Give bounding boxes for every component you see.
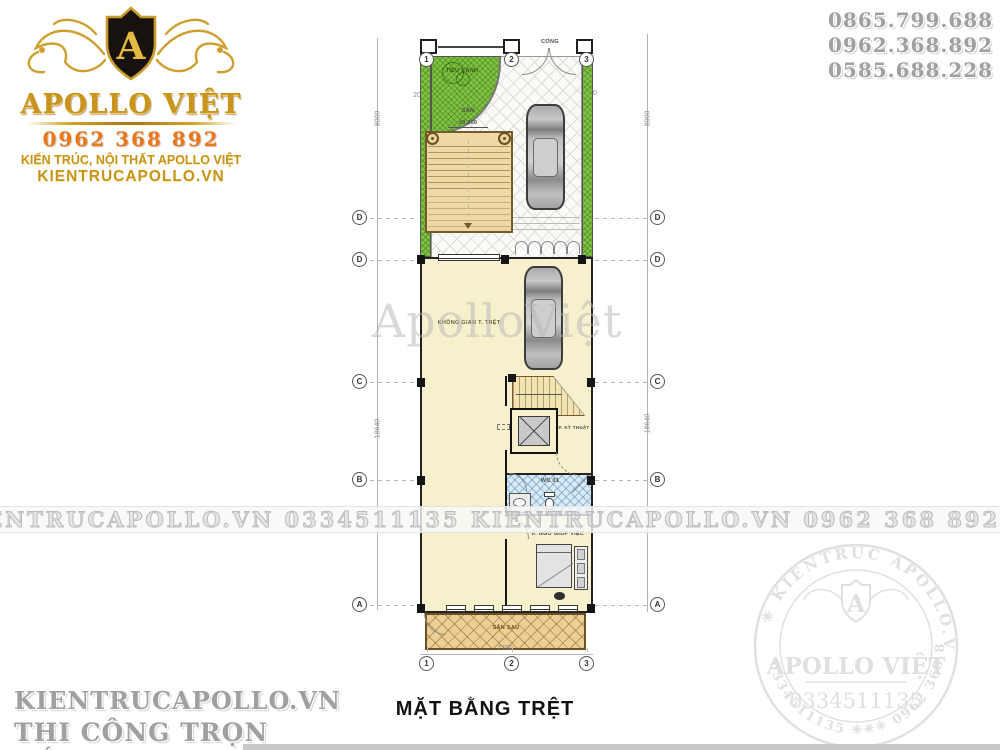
seal-monogram: A <box>846 589 866 618</box>
entrance-door-arc <box>567 241 580 254</box>
seal-name: APOLLO VIỆT <box>766 653 946 680</box>
wall-pilaster <box>417 604 425 613</box>
wall-pilaster <box>587 604 595 613</box>
grid-leader <box>370 218 418 219</box>
grid-row-d2-left: D <box>352 252 367 267</box>
entrance-door-arc <box>515 241 528 254</box>
partition-wall <box>505 376 507 406</box>
rear-window <box>558 605 578 612</box>
footer-slogan: KIENTRUCAPOLLO.VN THI CÔNG TRỌN GÓI! <box>14 686 274 750</box>
rear-window <box>530 605 550 612</box>
dim-house-depth-right: 18640 <box>645 410 652 438</box>
grid-leader <box>595 480 647 481</box>
plan-title: MẶT BẰNG TRỆT <box>350 698 620 721</box>
front-window <box>438 254 500 261</box>
yard-label: SÂN <box>450 108 486 114</box>
entrance-door-arc <box>541 241 554 254</box>
dim-house-depth-left: 18640 <box>375 415 382 443</box>
garden-label: TIỂU CẢNH <box>436 68 488 74</box>
contact-number: 0962.368.892 <box>828 33 992 58</box>
grid-leader <box>370 480 418 481</box>
grid-row-a-right: A <box>650 597 665 612</box>
grid-row-b-right: B <box>650 472 665 487</box>
logo-divider <box>26 122 236 125</box>
wall-pilaster <box>417 255 425 264</box>
car-symbol-front <box>526 104 565 210</box>
apollo-seal-watermark: ✳ KIENTRUC APOLLO.VN ✳ 0334511135 ✳✳✳ 09… <box>750 540 962 750</box>
porch-steps <box>513 217 580 235</box>
grid-leader <box>512 648 513 656</box>
grid-leader <box>595 260 647 261</box>
grid-row-d2-right: D <box>650 252 665 267</box>
gate-leaf-left <box>522 48 549 75</box>
entrance-door-arc <box>528 241 541 254</box>
technical-room-label: P. KỸ THUẬT <box>556 426 592 431</box>
grid-col-3-top: 3 <box>579 52 594 67</box>
grid-leader <box>370 382 418 383</box>
stool-symbol <box>554 592 565 600</box>
seal-number: 0334511135 <box>789 689 923 713</box>
entrance-door-arc <box>554 241 567 254</box>
contact-numbers: 0865.799.688 0962.368.892 0585.688.228 <box>828 8 992 83</box>
dim-front-depth-right: 8000 <box>645 105 652 133</box>
grid-leader <box>595 605 647 606</box>
bed-fold-line <box>537 563 573 587</box>
grid-col-1-bottom: 1 <box>419 656 434 671</box>
footer-slogan-line: THI CÔNG TRỌN GÓI! <box>14 718 274 750</box>
tree-symbol <box>456 72 470 86</box>
wc-door-arc <box>509 473 527 491</box>
grid-row-d1-right: D <box>650 210 665 225</box>
partition-wall <box>505 539 507 613</box>
grid-leader <box>595 382 647 383</box>
toilet-tank <box>544 492 555 497</box>
dim-total-width: 7700 <box>485 645 525 652</box>
grid-col-2-bottom: 2 <box>504 656 519 671</box>
grid-col-1-top: 1 <box>419 52 434 67</box>
wall-pilaster <box>578 255 586 264</box>
wardrobe-symbol <box>574 546 588 590</box>
wall-pilaster <box>501 255 509 264</box>
bed-pillow-line <box>537 552 571 553</box>
grid-leader <box>370 260 418 261</box>
ramp-arrow <box>464 223 472 229</box>
apollo-logo: A APOLLO VIỆT 0962 368 892 KIẾN TRÚC, NỘ… <box>12 4 250 186</box>
logo-crest: A <box>18 4 244 86</box>
grid-leader <box>587 648 588 656</box>
back-door-arc <box>424 613 446 635</box>
logo-phone: 0962 368 892 <box>12 127 250 151</box>
yard-level-label: ±0.200 <box>448 120 488 128</box>
elevator-symbol <box>510 408 558 454</box>
grid-row-b-left: B <box>352 472 367 487</box>
grid-row-c-right: C <box>650 374 665 389</box>
wall-pilaster <box>417 476 425 485</box>
elevator-door <box>497 424 510 430</box>
rear-window <box>474 605 494 612</box>
partition-wall <box>505 450 507 474</box>
logo-monogram: A <box>116 24 147 68</box>
dim-front-depth-left: 8000 <box>375 105 382 133</box>
grid-col-2-top: 2 <box>504 52 519 67</box>
rear-window <box>446 605 466 612</box>
rear-window <box>502 605 522 612</box>
front-fence <box>438 46 503 48</box>
wc-label: WC 01 <box>536 478 564 484</box>
grid-row-d1-left: D <box>352 210 367 225</box>
page: A APOLLO VIỆT 0962 368 892 KIẾN TRÚC, NỘ… <box>0 0 1000 750</box>
logo-website: KIENTRUCAPOLLO.VN <box>12 168 250 186</box>
grid-leader <box>595 218 647 219</box>
ramp-steps <box>428 146 510 192</box>
grid-leader <box>427 648 428 656</box>
stair-column <box>508 374 516 382</box>
watermark-band: KIENTRUCAPOLLO.VN 0334511135 KIENTRUCAPO… <box>0 506 1000 533</box>
contact-number: 0585.688.228 <box>828 58 992 83</box>
contact-number: 0865.799.688 <box>828 8 992 33</box>
ramp-post-right <box>498 132 511 145</box>
stair-direction-line <box>516 394 562 395</box>
bed-symbol <box>536 544 572 588</box>
wall-pilaster <box>587 378 595 387</box>
grid-row-c-left: C <box>352 374 367 389</box>
wall-pilaster <box>587 476 595 485</box>
wall-pilaster <box>417 378 425 387</box>
dim-line-bottom <box>420 654 593 655</box>
door-arc-hall <box>556 452 580 476</box>
grid-leader <box>370 605 418 606</box>
ramp-axis <box>468 140 469 224</box>
gate-leaf-right <box>549 48 576 75</box>
watermark-band-text: KIENTRUCAPOLLO.VN 0334511135 KIENTRUCAPO… <box>0 507 1000 532</box>
floor-plan: 8000 18640 8000 18640 6000 200 4000 3400… <box>350 20 680 730</box>
ramp-post-left <box>426 132 439 145</box>
stair-break <box>554 376 586 416</box>
footer-website: KIENTRUCAPOLLO.VN <box>14 686 274 715</box>
back-yard-label: SÂN SAU <box>478 625 534 631</box>
logo-name: APOLLO VIỆT <box>12 89 250 120</box>
grid-row-a-left: A <box>352 597 367 612</box>
logo-tagline: KIẾN TRÚC, NỘI THẤT APOLLO VIỆT <box>12 153 250 167</box>
grid-col-3-bottom: 3 <box>579 656 594 671</box>
gate-label: CỔNG <box>520 39 580 45</box>
center-watermark: ApolloViệt <box>372 294 632 348</box>
grass-strip-right <box>582 56 593 257</box>
